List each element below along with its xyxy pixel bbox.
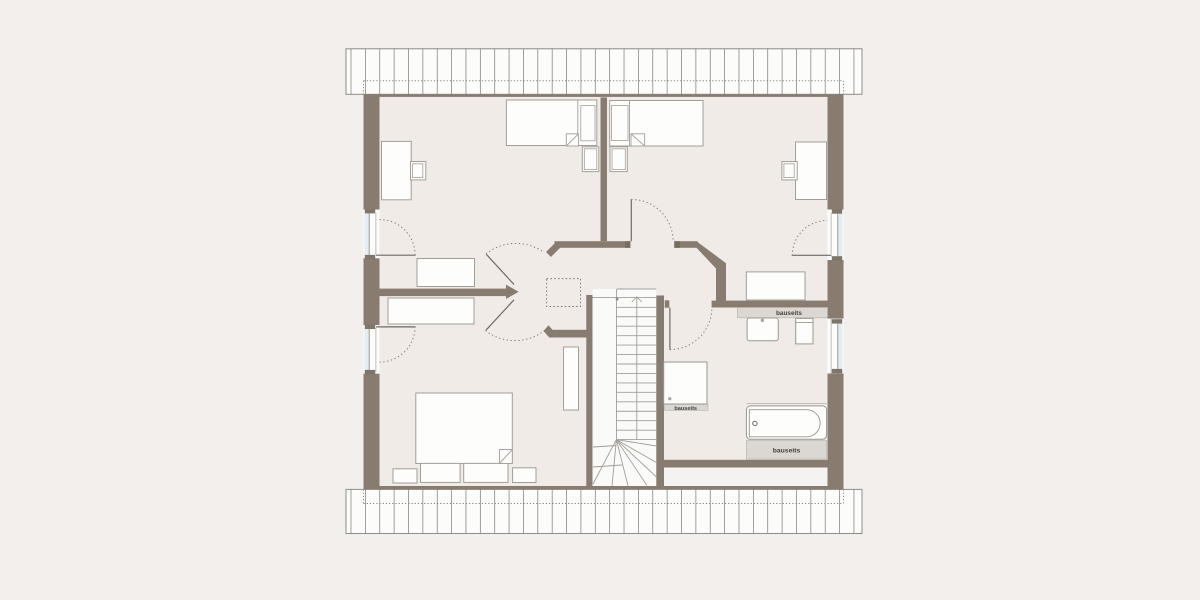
svg-text:bauseits: bauseits <box>773 448 801 455</box>
svg-text:bauseits: bauseits <box>674 406 697 412</box>
svg-text:bauseits: bauseits <box>776 310 802 317</box>
